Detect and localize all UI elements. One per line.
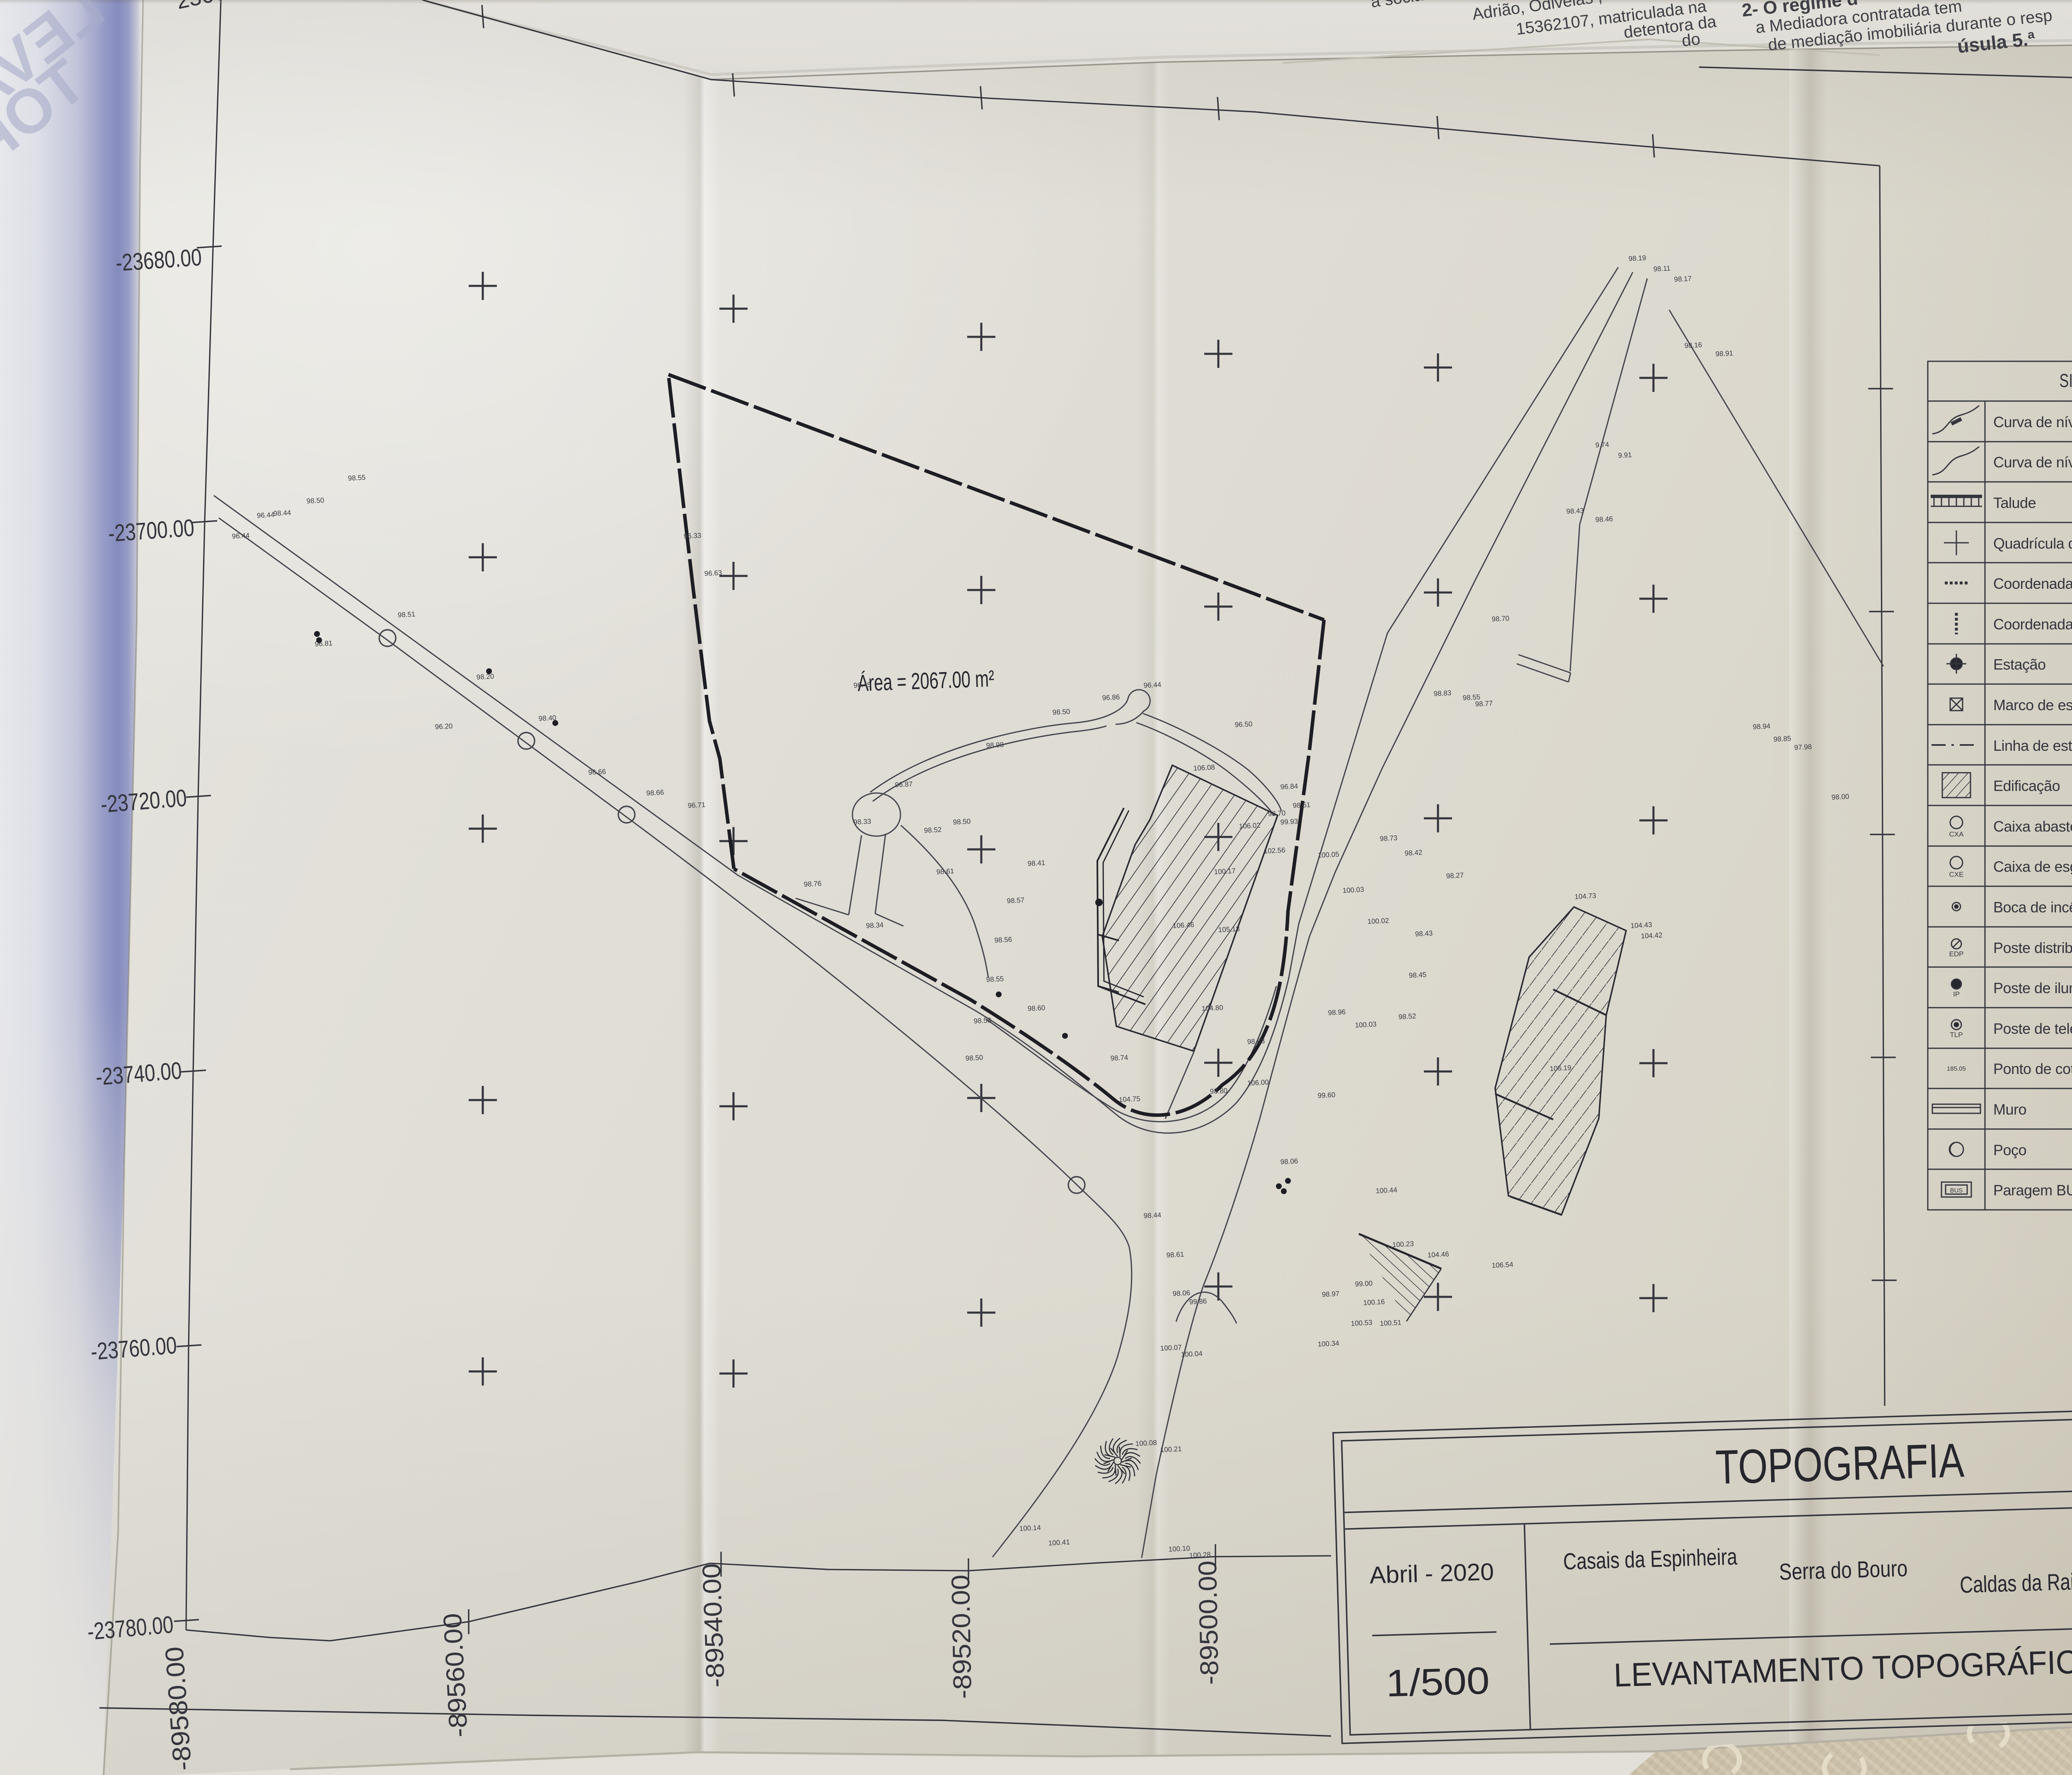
svg-text:98.85: 98.85 [1773,735,1791,743]
svg-text:98.94: 98.94 [1752,722,1770,731]
svg-text:-23740.00: -23740.00 [95,1057,183,1091]
svg-text:98.66: 98.66 [646,788,664,797]
svg-text:Quadrícula de coordenação: Quadrícula de coordenação [1993,535,2072,552]
svg-text:98.97: 98.97 [1322,1290,1339,1299]
svg-text:98.70: 98.70 [1268,809,1285,818]
svg-text:96.33: 96.33 [683,532,701,540]
svg-text:100.08: 100.08 [1135,1439,1157,1448]
svg-text:104.73: 104.73 [1574,892,1596,901]
svg-text:98.20: 98.20 [476,672,494,681]
svg-text:100.34: 100.34 [1317,1339,1339,1348]
svg-text:98.77: 98.77 [1475,699,1493,708]
svg-text:185.05: 185.05 [1947,1065,1966,1072]
svg-text:98.00: 98.00 [1831,793,1849,801]
svg-text:98.50: 98.50 [1052,708,1070,716]
svg-text:Curva de nível mestra com cota: Curva de nível mestra com cota [1993,414,2072,430]
svg-text:Muro: Muro [1993,1101,2026,1118]
svg-text:Marco de estrema de propriedad: Marco de estrema de propriedade [1993,696,2072,713]
svg-text:98.46: 98.46 [1595,515,1613,524]
svg-text:98.60: 98.60 [1027,1004,1045,1013]
svg-text:98.52: 98.52 [924,826,942,834]
svg-text:106.00: 106.00 [1247,1078,1269,1087]
svg-text:100.14: 100.14 [1019,1524,1041,1533]
svg-text:105.13: 105.13 [1218,925,1240,934]
svg-text:96.50: 96.50 [1234,720,1252,729]
svg-text:100.04: 100.04 [1181,1349,1203,1359]
svg-text:96.44: 96.44 [1143,681,1161,689]
svg-text:98.73: 98.73 [1380,834,1397,843]
svg-text:99.93: 99.93 [1280,817,1298,826]
svg-text:98.43: 98.43 [1566,507,1584,515]
svg-text:99.00: 99.00 [1355,1279,1372,1288]
svg-text:96.44: 96.44 [232,532,249,540]
svg-text:1/500: 1/500 [1385,1659,1490,1705]
svg-text:Linha de estrema: Linha de estrema [1993,737,2072,754]
svg-text:Poste de telecomunicações: Poste de telecomunicações [1993,1020,2072,1037]
svg-text:102.56: 102.56 [1264,846,1285,855]
svg-text:98.50: 98.50 [953,817,971,826]
svg-text:Serra do Bouro: Serra do Bouro [1779,1555,1908,1585]
svg-text:do: do [1681,30,1701,50]
svg-text:96.20: 96.20 [435,722,453,731]
svg-text:Coordenada m: Coordenada m [1993,616,2072,633]
svg-text:98.41: 98.41 [1027,859,1045,868]
svg-text:98.83: 98.83 [1433,689,1451,698]
svg-text:96.84: 96.84 [1280,782,1298,791]
svg-text:-23760.00: -23760.00 [90,1332,178,1365]
svg-text:Área = 2067.00 m²: Área = 2067.00 m² [857,665,995,696]
svg-text:Abril - 2020: Abril - 2020 [1369,1558,1494,1589]
svg-text:98.52: 98.52 [1398,1012,1416,1021]
svg-text:100.21: 100.21 [1160,1445,1182,1454]
svg-text:98.57: 98.57 [1007,896,1024,905]
svg-text:Boca de incêndio: Boca de incêndio [1993,899,2072,916]
svg-text:23660: 23660 [174,0,240,14]
svg-text:TOPOGRAFIA: TOPOGRAFIA [1715,1433,1965,1494]
svg-text:98.50: 98.50 [306,496,324,505]
svg-text:Coordenada p: Coordenada p [1993,575,2072,592]
svg-text:98.55: 98.55 [348,474,366,482]
svg-text:98.33: 98.33 [853,817,871,826]
svg-text:98.11: 98.11 [1653,264,1670,273]
svg-text:LEVANTAMENTO TOPOGRÁFICO: LEVANTAMENTO TOPOGRÁFICO [1613,1642,2072,1693]
svg-text:98.06: 98.06 [1172,1289,1190,1298]
svg-text:100.03: 100.03 [1355,1020,1377,1029]
svg-text:-89540.00: -89540.00 [697,1563,730,1688]
svg-text:9.74: 9.74 [1595,440,1609,449]
svg-text:98.96: 98.96 [1328,1008,1346,1017]
svg-text:98.45: 98.45 [1409,971,1426,979]
svg-text:-23720.00: -23720.00 [100,784,188,818]
svg-text:98.06: 98.06 [1280,1157,1298,1166]
svg-text:Talude: Talude [1993,494,2036,511]
svg-text:106.54: 106.54 [1491,1260,1513,1270]
svg-text:98.98: 98.98 [986,741,1004,750]
svg-text:96.44: 96.44 [257,511,274,520]
svg-text:106.08: 106.08 [1193,763,1215,772]
svg-text:99.86: 99.86 [1189,1297,1207,1306]
svg-text:CXE: CXE [1949,871,1964,878]
svg-text:100.51: 100.51 [1380,1318,1402,1328]
svg-text:98.34: 98.34 [866,921,884,930]
svg-text:98.55: 98.55 [986,975,1004,984]
svg-text:104.80: 104.80 [1201,1004,1223,1013]
svg-text:104.43: 104.43 [1630,921,1652,930]
svg-text:Poste distribuição EDP: Poste distribuição EDP [1993,939,2072,956]
svg-text:99.60: 99.60 [1317,1091,1335,1100]
svg-text:98.83: 98.83 [1247,1037,1265,1046]
svg-text:96.87: 96.87 [895,780,913,789]
svg-text:Caixa de esgoto doméstico: Caixa de esgoto doméstico [1993,858,2072,875]
svg-text:96.71: 96.71 [687,801,705,810]
svg-text:98.51: 98.51 [1293,801,1310,810]
svg-text:100.07: 100.07 [1160,1343,1182,1352]
svg-text:100.53: 100.53 [1351,1318,1372,1328]
svg-text:100.23: 100.23 [1392,1240,1414,1249]
svg-text:98.44: 98.44 [273,509,291,518]
svg-text:IP: IP [1953,990,1960,998]
svg-text:98.80: 98.80 [1210,1087,1227,1095]
svg-text:98.56: 98.56 [994,936,1012,944]
svg-text:9.91: 9.91 [1618,451,1632,459]
svg-text:98.70: 98.70 [1491,614,1509,623]
svg-text:-23680.00: -23680.00 [115,244,203,276]
svg-text:98.17: 98.17 [1674,275,1692,283]
svg-text:100.16: 100.16 [1363,1298,1385,1307]
svg-text:100.02: 100.02 [1367,917,1389,926]
svg-text:106.02: 106.02 [1239,821,1261,830]
svg-text:100.28: 100.28 [1189,1550,1211,1560]
svg-text:100.17: 100.17 [1214,867,1236,876]
svg-text:Poste de iluminação: Poste de iluminação [1993,979,2072,996]
svg-text:SIMBOLOGIA: SIMBOLOGIA [2060,370,2072,391]
svg-text:100.44: 100.44 [1375,1186,1397,1195]
svg-text:98.44: 98.44 [1143,1211,1161,1220]
svg-text:-23780.00: -23780.00 [86,1611,174,1645]
svg-text:96.86: 96.86 [1102,693,1120,702]
svg-text:Casais da Espinheira: Casais da Espinheira [1563,1543,1738,1574]
svg-text:100.10: 100.10 [1168,1544,1190,1553]
svg-text:104.75: 104.75 [1118,1095,1140,1104]
svg-text:EDP: EDP [1949,950,1964,958]
svg-text:100.05: 100.05 [1317,850,1339,859]
svg-text:104.46: 104.46 [1427,1250,1449,1259]
svg-text:TLP: TLP [1950,1031,1963,1039]
svg-text:98.16: 98.16 [1684,341,1702,350]
svg-text:98.61: 98.61 [936,867,954,876]
svg-text:Estação: Estação [1993,656,2046,673]
svg-text:CXA: CXA [1949,830,1964,838]
svg-text:98.27: 98.27 [1446,871,1464,880]
svg-text:96.66: 96.66 [588,768,606,776]
svg-text:98.61: 98.61 [1166,1250,1184,1259]
svg-text:98.91: 98.91 [1715,349,1733,358]
svg-text:96.45: 96.45 [853,681,871,689]
svg-text:98.42: 98.42 [1404,849,1422,857]
svg-text:a social na f: a social na f [1370,0,1460,11]
svg-text:Caldas da Rainha: Caldas da Rainha [1959,1567,2072,1598]
svg-text:-89560.00: -89560.00 [438,1613,473,1738]
svg-text:98.19: 98.19 [1628,254,1646,263]
svg-text:104.42: 104.42 [1641,931,1663,940]
svg-text:98.43: 98.43 [1415,929,1433,938]
svg-text:Paragem BUS: Paragem BUS [1993,1182,2072,1199]
svg-text:106.46: 106.46 [1172,921,1194,930]
svg-text:Poço: Poço [1993,1141,2026,1158]
svg-text:Curva de nível secundária: Curva de nível secundária [1993,454,2072,471]
svg-text:98.50: 98.50 [965,1054,983,1062]
svg-text:-89520.00: -89520.00 [946,1574,977,1699]
svg-text:98.76: 98.76 [804,880,821,888]
svg-text:-23700.00: -23700.00 [107,514,195,547]
svg-text:100.41: 100.41 [1048,1538,1070,1547]
svg-text:106.19: 106.19 [1549,1064,1571,1073]
svg-text:Ponto de cota: Ponto de cota [1993,1060,2072,1077]
svg-text:98.53: 98.53 [973,1016,991,1025]
svg-text:Edificação: Edificação [1993,777,2060,794]
svg-text:96.63: 96.63 [704,569,722,578]
svg-text:98.51: 98.51 [397,610,415,619]
svg-text:-89500.00: -89500.00 [1193,1560,1224,1685]
svg-text:97.98: 97.98 [1794,743,1812,752]
svg-text:98.74: 98.74 [1110,1054,1128,1062]
svg-text:BUS: BUS [1950,1187,1963,1194]
svg-text:100.03: 100.03 [1342,885,1364,895]
svg-text:Caixa abastecimento de água: Caixa abastecimento de água [1993,818,2072,835]
